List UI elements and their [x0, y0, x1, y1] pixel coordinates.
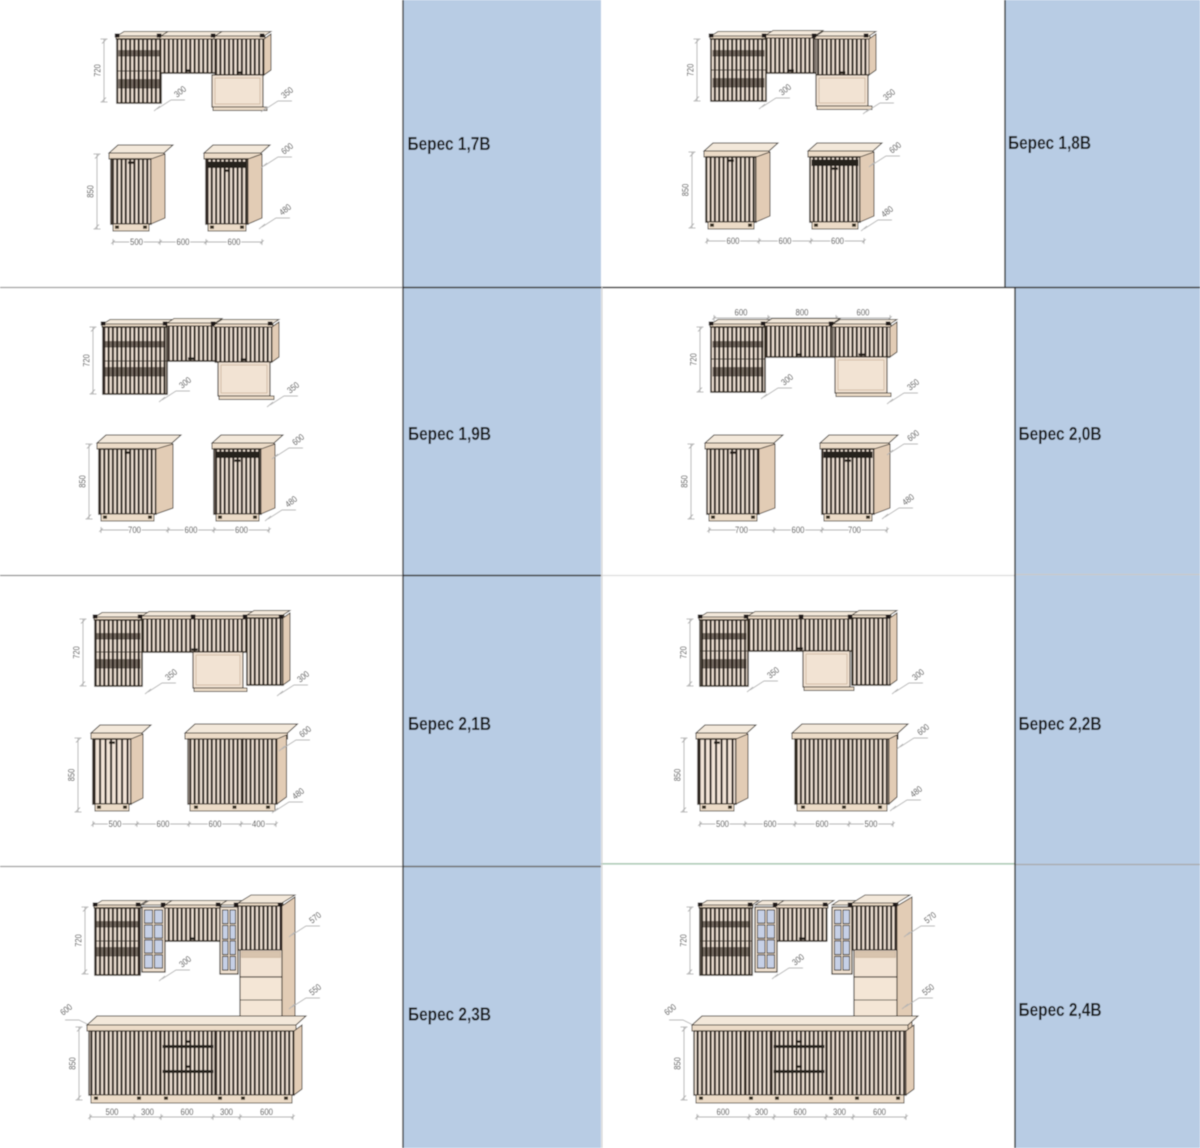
svg-text:700: 700 — [735, 525, 748, 535]
svg-text:600: 600 — [177, 237, 190, 247]
svg-text:850: 850 — [67, 769, 77, 782]
svg-text:600: 600 — [727, 236, 740, 246]
svg-text:720: 720 — [82, 354, 92, 367]
svg-text:720: 720 — [686, 64, 696, 77]
svg-text:600: 600 — [831, 236, 844, 246]
svg-text:300: 300 — [220, 1107, 233, 1117]
svg-text:720: 720 — [72, 646, 82, 659]
svg-text:Берес 1,7В: Берес 1,7В — [408, 133, 491, 154]
svg-text:600: 600 — [185, 525, 198, 535]
svg-text:850: 850 — [673, 769, 683, 782]
svg-text:600: 600 — [228, 237, 241, 247]
svg-text:600: 600 — [209, 819, 222, 829]
svg-text:600: 600 — [873, 1107, 886, 1117]
svg-text:850: 850 — [680, 475, 690, 488]
svg-text:Берес 2,2В: Берес 2,2В — [1019, 713, 1102, 734]
svg-text:850: 850 — [673, 1057, 683, 1070]
svg-text:600: 600 — [157, 819, 170, 829]
svg-text:500: 500 — [106, 1107, 119, 1117]
svg-text:600: 600 — [260, 1107, 273, 1117]
svg-text:Берес 2,3В: Берес 2,3В — [408, 1004, 491, 1025]
svg-text:600: 600 — [792, 525, 805, 535]
svg-text:400: 400 — [252, 819, 265, 829]
svg-text:600: 600 — [735, 308, 748, 318]
svg-text:600: 600 — [779, 236, 792, 246]
svg-text:600: 600 — [235, 525, 248, 535]
svg-text:700: 700 — [128, 525, 141, 535]
svg-text:850: 850 — [78, 475, 88, 488]
svg-text:300: 300 — [755, 1107, 768, 1117]
svg-text:850: 850 — [68, 1057, 78, 1070]
svg-text:600: 600 — [764, 819, 777, 829]
svg-text:600: 600 — [717, 1107, 730, 1117]
svg-text:300: 300 — [141, 1107, 154, 1117]
svg-text:720: 720 — [679, 646, 689, 659]
svg-text:600: 600 — [181, 1107, 194, 1117]
svg-text:Берес 1,9В: Берес 1,9В — [408, 423, 491, 444]
svg-text:500: 500 — [109, 819, 122, 829]
svg-text:500: 500 — [865, 819, 878, 829]
svg-text:Берес 2,4В: Берес 2,4В — [1019, 999, 1102, 1020]
svg-text:720: 720 — [689, 353, 699, 366]
svg-text:500: 500 — [130, 237, 143, 247]
svg-text:700: 700 — [848, 525, 861, 535]
svg-text:600: 600 — [857, 308, 870, 318]
svg-text:800: 800 — [796, 308, 809, 318]
svg-text:720: 720 — [93, 64, 103, 77]
svg-text:Берес 1,8В: Берес 1,8В — [1008, 132, 1091, 153]
svg-text:850: 850 — [681, 184, 691, 197]
svg-text:720: 720 — [74, 934, 84, 947]
svg-text:Берес 2,1В: Берес 2,1В — [408, 713, 491, 734]
svg-text:500: 500 — [716, 819, 729, 829]
svg-text:Берес 2,0В: Берес 2,0В — [1019, 423, 1102, 444]
svg-text:600: 600 — [816, 819, 829, 829]
svg-text:300: 300 — [833, 1107, 846, 1117]
svg-text:720: 720 — [679, 934, 689, 947]
svg-text:600: 600 — [794, 1107, 807, 1117]
svg-text:850: 850 — [86, 185, 96, 198]
